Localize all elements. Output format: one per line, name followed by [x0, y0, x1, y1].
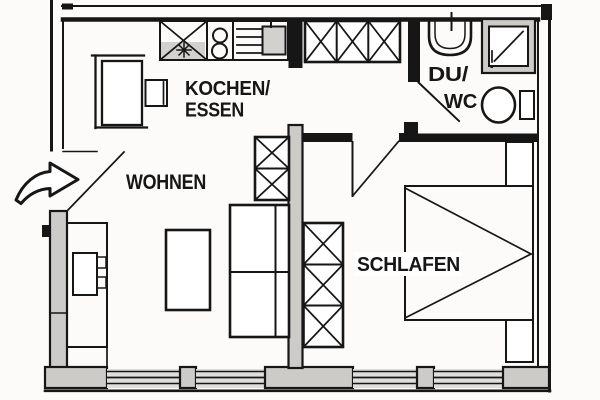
living-wardrobe [255, 137, 289, 200]
room-label-bath-line2: WC [444, 91, 477, 113]
toilet-cistern [520, 91, 534, 119]
shower [482, 19, 535, 73]
hall-bedroom-wall [303, 133, 353, 142]
wall-pier [45, 367, 107, 388]
tv [73, 253, 97, 295]
dining-set [92, 56, 167, 129]
bedroom-door-swing [353, 142, 399, 196]
shelf-tab [97, 277, 106, 288]
coffee-table [166, 230, 210, 310]
kitchen-appliance [263, 27, 286, 55]
room-label-living: WOHNEN [126, 171, 206, 194]
drainer-lines [237, 29, 261, 53]
wall-pier-right [503, 367, 549, 388]
wall-tick [42, 225, 51, 237]
room-label-bedroom: SCHLAFEN [357, 253, 460, 276]
hall-kitchen-wall [289, 19, 303, 68]
dining-table [102, 61, 142, 125]
shelf-tab [97, 257, 106, 268]
sink-drain-star-icon [177, 43, 191, 57]
window-mullion [417, 367, 434, 388]
entrance-arrow-icon [16, 163, 78, 204]
left-wall-lower [50, 211, 67, 371]
room-label-kitchen-line1: KOCHEN/ [185, 77, 271, 100]
bottom-wall-windows [45, 367, 549, 388]
room-label-kitchen-line2: ESSEN [185, 99, 244, 122]
room-label-bath-line1: DU/ [428, 64, 469, 86]
window-mullion [180, 367, 196, 388]
bath-bottom-wall [418, 134, 538, 143]
bath-left-wall [408, 19, 420, 82]
wall-pier-center [265, 367, 353, 388]
hall-wardrobe [305, 21, 400, 62]
hob-burner-icon [212, 44, 227, 59]
living-bedroom-wall [289, 125, 303, 368]
toilet [482, 88, 515, 123]
floor-plan-drawing: KOCHEN/ ESSEN WOHNEN DU/ WC SCHLAFEN [0, 0, 600, 400]
wall-corner-stub [399, 122, 418, 142]
nightstand [506, 320, 533, 362]
bedroom-wardrobe [304, 223, 344, 347]
kitchen-counter [160, 19, 288, 60]
hob-burner-icon [213, 29, 227, 43]
nightstand [506, 142, 533, 186]
floor-plan: KOCHEN/ ESSEN WOHNEN DU/ WC SCHLAFEN [0, 0, 600, 400]
